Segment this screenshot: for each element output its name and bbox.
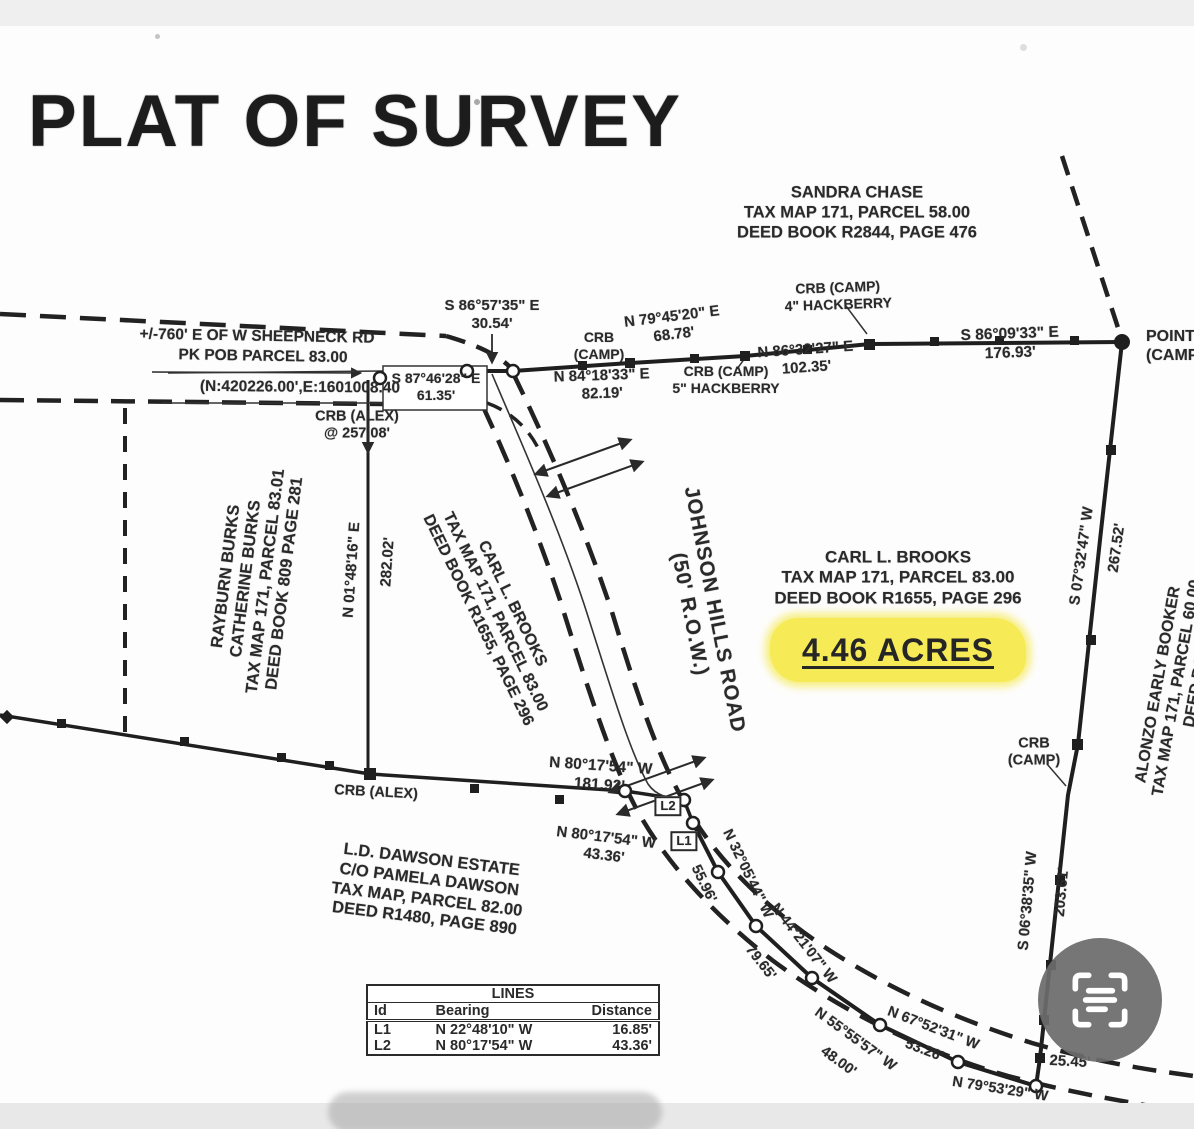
crb-alex-marker-label: CRB (ALEX) @ 257.08' xyxy=(315,409,399,444)
line-id: L1 xyxy=(367,1021,430,1039)
distance-text: 82.19' xyxy=(554,383,650,404)
distance-text: 176.93' xyxy=(961,342,1060,364)
hackberry4-marker: CRB (CAMP) 4" HACKBERRY xyxy=(784,277,892,314)
owner-name: SANDRA CHASE xyxy=(737,183,977,203)
line-distance: 16.85' xyxy=(586,1021,659,1039)
plat-document: PLAT OF SURVEY SANDRA CHASE TAX MAP 171,… xyxy=(0,0,1194,1129)
acreage-value: 4.46 ACRES xyxy=(802,632,994,669)
line-bearing: N 22°48'10" W xyxy=(430,1021,586,1039)
bearing-n801754-main: N 80°17'54" W 181.92' xyxy=(547,754,653,798)
point-label: POINT xyxy=(1146,327,1194,346)
bearing-s874628: S 87°46'28" E 61.35' xyxy=(389,370,483,404)
marker-type: (CAMP) xyxy=(1008,753,1060,770)
distance-text: 30.54' xyxy=(444,315,539,333)
scan-speck xyxy=(155,34,160,39)
line-id: L2 xyxy=(367,1038,430,1055)
line-distance: 43.36' xyxy=(586,1038,659,1055)
point-label: (CAMPB xyxy=(1146,346,1194,365)
pob-note: PK POB PARCEL 83.00 xyxy=(178,346,347,368)
deed-book: DEED BOOK R1655, PAGE 296 xyxy=(774,588,1021,608)
table-title: LINES xyxy=(367,985,659,1003)
bearing-s860933: S 86°09'33" E 176.93' xyxy=(960,324,1059,365)
marker-type: CRB xyxy=(574,329,625,346)
lines-table: LINES Id Bearing Distance L1 N 22°48'10"… xyxy=(366,984,660,1056)
distance-282: 282.02' xyxy=(377,537,398,588)
table-row: L2 N 80°17'54" W 43.36' xyxy=(367,1038,659,1055)
scan-edge-top xyxy=(0,0,1194,26)
coordinates-note: (N:420226.00',E:1601008.40 xyxy=(200,378,400,398)
bearing-n841833: N 84°18'33" E 82.19' xyxy=(553,365,650,404)
scan-speck xyxy=(1020,44,1027,51)
bearing-text: S 86°57'35" E xyxy=(444,297,539,315)
marker-type: (CAMP) xyxy=(574,346,625,363)
table-row: L1 N 22°48'10" W 16.85' xyxy=(367,1021,659,1039)
blurred-region xyxy=(328,1092,662,1129)
owner-name: CARL L. BROOKS xyxy=(774,547,1021,567)
tax-map: TAX MAP 171, PARCEL 58.00 xyxy=(737,203,977,223)
marker-type: CRB (ALEX) xyxy=(315,409,399,426)
tax-map: TAX MAP 171, PARCEL 83.00 xyxy=(774,568,1021,588)
bearing-text: N 84°18'33" E xyxy=(553,365,649,386)
col-header-id: Id xyxy=(367,1003,430,1021)
parcel-label-brooks-main: CARL L. BROOKS TAX MAP 171, PARCEL 83.00… xyxy=(774,547,1021,608)
bearing-text: S 87°46'28" E xyxy=(389,370,483,387)
boundary-dashed-sheepneck-curve xyxy=(446,336,513,370)
boundary-dashed-northeast xyxy=(1062,156,1122,340)
distance-text: 61.35' xyxy=(389,387,483,404)
acreage-highlight: 4.46 ACRES xyxy=(770,618,1026,682)
bearing-text: S 86°09'33" E xyxy=(960,324,1059,346)
col-header-bearing: Bearing xyxy=(430,1003,586,1021)
marker-tree: 5" HACKBERRY xyxy=(672,380,779,397)
col-header-distance: Distance xyxy=(586,1003,659,1021)
bearing-n863227: N 86°32'27" E 102.35' xyxy=(757,338,855,381)
crb-camp-marker-2: CRB (CAMP) xyxy=(1008,736,1060,771)
parcel-label-sandra-chase: SANDRA CHASE TAX MAP 171, PARCEL 58.00 D… xyxy=(737,183,977,242)
bearing-s865735: S 86°57'35" E 30.54' xyxy=(444,297,539,333)
marker-distance: @ 257.08' xyxy=(315,426,399,443)
deed-book: DEED BOOK R2844, PAGE 476 xyxy=(737,223,977,243)
line-tag-l2: L2 xyxy=(654,796,681,816)
marker-type: CRB xyxy=(1008,736,1060,753)
line-bearing: N 80°17'54" W xyxy=(430,1038,586,1055)
scan-button[interactable] xyxy=(1038,938,1162,1062)
page-title: PLAT OF SURVEY xyxy=(28,78,682,166)
point-campbell-label: POINT (CAMPB xyxy=(1146,327,1194,365)
crb-camp-marker-1: CRB (CAMP) xyxy=(574,329,625,363)
scan-text-icon xyxy=(1063,963,1137,1037)
point-monument xyxy=(1114,334,1130,350)
line-tag-l1: L1 xyxy=(670,831,697,851)
